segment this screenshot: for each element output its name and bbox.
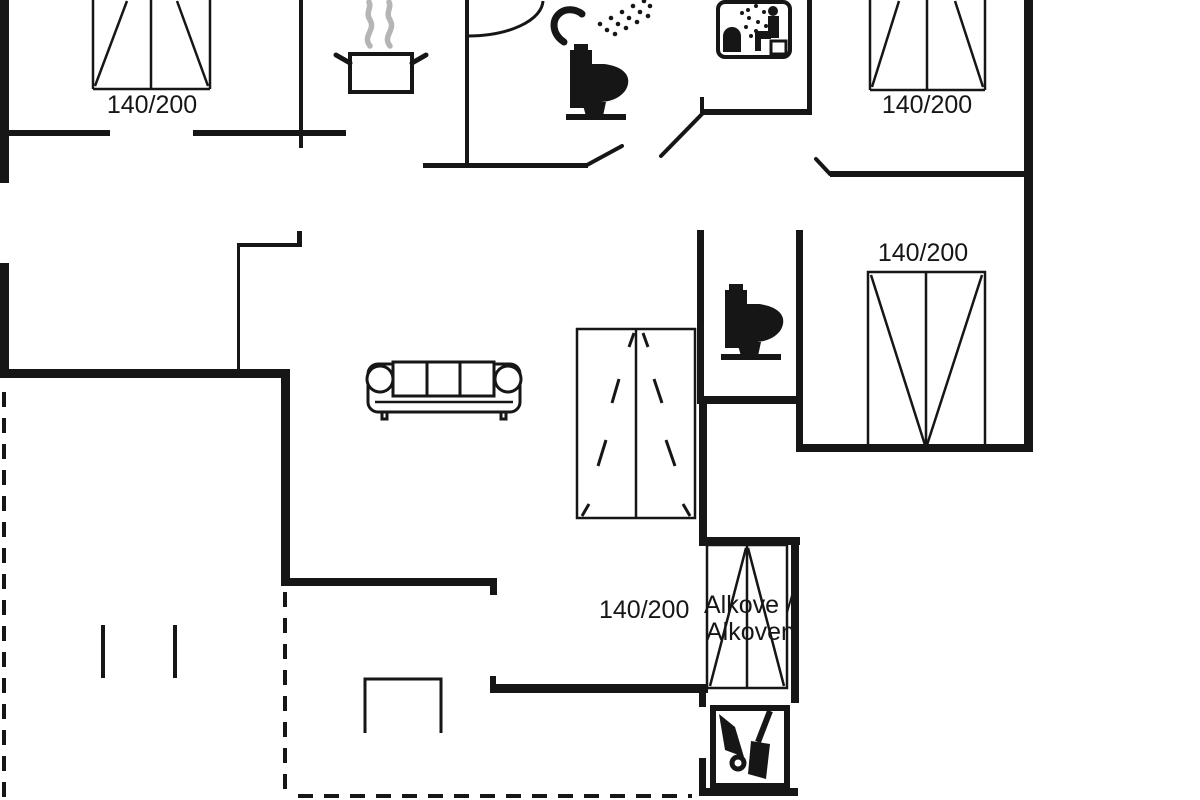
- wall-bedroom1-east: [299, 0, 303, 148]
- shed-tools-icon: [713, 708, 787, 786]
- wall-bath-south-east: [704, 109, 812, 115]
- wall-bath-west: [465, 0, 469, 168]
- wall-living-west-v: [281, 369, 290, 586]
- entrance-door-arc: [468, 1, 543, 36]
- wall-living-stub-cap: [297, 231, 302, 247]
- wall-living-stub-v: [237, 243, 240, 377]
- wall-alcove-west: [699, 400, 707, 546]
- wall-wc-east: [796, 230, 803, 452]
- bed-size-label-right: 140/200: [858, 239, 988, 268]
- shower-icon: [554, 0, 652, 42]
- bed-living-room: [577, 329, 695, 518]
- door-leaf-hall: [661, 113, 703, 156]
- wall-left-top: [0, 0, 9, 183]
- wall-bedroom1-south-b: [193, 130, 346, 136]
- planter-outline: [365, 679, 441, 733]
- door-leaf-bath: [587, 146, 622, 165]
- wall-hall-south: [490, 684, 708, 693]
- floor-plan-drawing: [0, 0, 1200, 800]
- floor-plan: 140/200 140/200 140/200 140/200 Alkove /…: [0, 0, 1200, 800]
- sofa-icon: [367, 362, 521, 419]
- wall-bedroom2-south: [830, 171, 1028, 177]
- bed-top-right: [870, 0, 985, 90]
- cooking-pot-icon: [336, 54, 426, 92]
- wall-living-stub-h: [237, 243, 301, 247]
- wall-left-lower: [0, 263, 9, 377]
- wall-living-south-cap: [490, 578, 497, 595]
- sauna-icon: [718, 2, 790, 57]
- bed-right: [868, 272, 985, 448]
- wall-bedroom1-south-a: [7, 130, 110, 136]
- bed-top-left: [93, 0, 210, 89]
- wall-bath-south: [423, 163, 588, 168]
- door-leaf-bedroom2: [816, 159, 830, 174]
- toilet-icon-wc: [721, 284, 783, 360]
- toilet-icon-bathroom: [566, 44, 628, 120]
- wall-living-west-h: [0, 369, 290, 378]
- wall-door-jamb: [700, 97, 704, 113]
- wall-right-outer: [1024, 0, 1033, 452]
- wall-living-south: [281, 578, 497, 586]
- bed-size-label-top-left: 140/200: [87, 91, 217, 120]
- wall-shed-jamb-top: [699, 690, 706, 707]
- wall-shed-south: [699, 788, 798, 796]
- steam-icon: [367, 2, 391, 46]
- wall-wc-west: [697, 230, 704, 402]
- alcove-label-line2: Alkoven: [706, 618, 795, 647]
- bed-size-label-top-right: 140/200: [862, 91, 992, 120]
- wall-wc-south: [697, 396, 803, 404]
- bed-size-label-alcove: 140/200: [599, 596, 689, 625]
- wall-bath-east: [807, 0, 812, 115]
- alcove-label-line1: Alkove /: [704, 591, 793, 620]
